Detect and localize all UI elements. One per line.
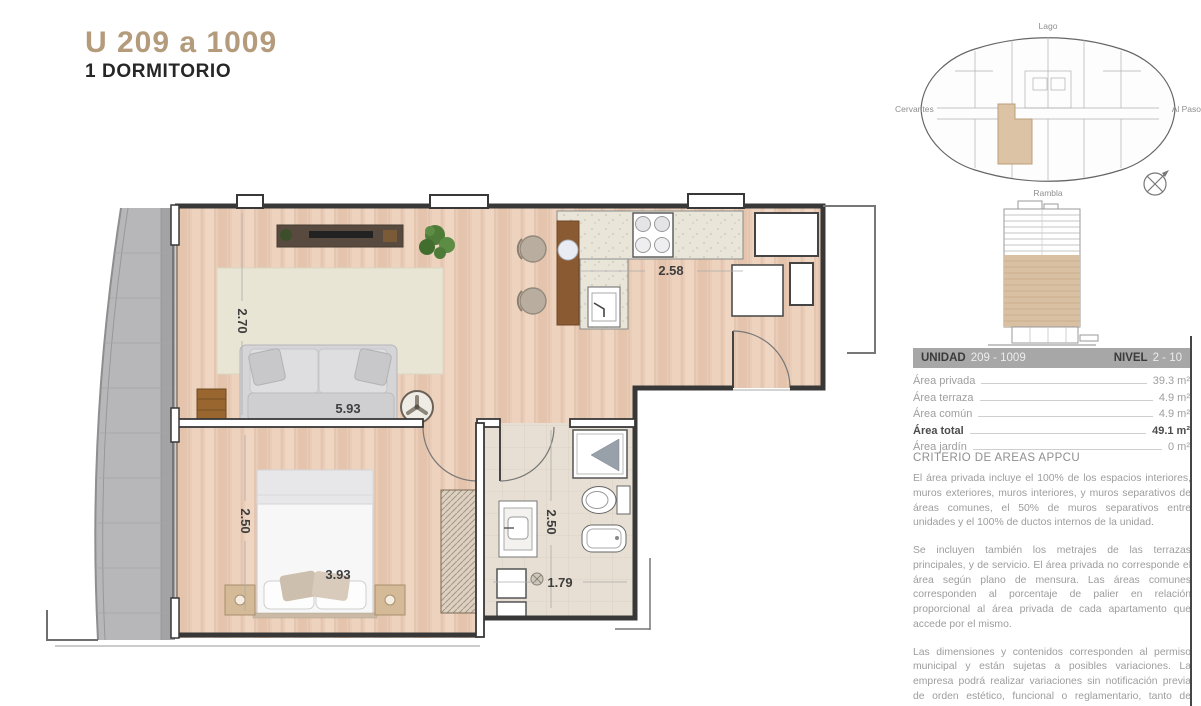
north-compass-icon (1144, 170, 1169, 195)
shower (573, 430, 627, 478)
tv-console (277, 225, 403, 247)
dimension-kitchen-width: 2.58 (658, 263, 683, 278)
table-row-total: Área total 49.1 m² (913, 425, 1190, 442)
floor-plan: 2.70 5.93 2.58 2.50 3.93 2.50 1.79 (20, 183, 885, 688)
unidad-value: 209 - 1009 (971, 352, 1026, 364)
header: U 209 a 1009 1 DORMITORIO (85, 26, 277, 83)
nivel-label: NIVEL (1114, 352, 1148, 364)
page-subtitle: 1 DORMITORIO (85, 61, 277, 83)
leader-line (980, 400, 1153, 401)
leader-line (981, 383, 1146, 384)
area-value: 39.3 m² (1153, 375, 1190, 387)
leader-line (973, 449, 1162, 450)
floorplan-sheet: U 209 a 1009 1 DORMITORIO (0, 0, 1201, 706)
key-plan-label-right: Al Paso (1172, 104, 1201, 114)
key-plan: Lago Rambla Cervantes Al Paso (893, 16, 1201, 202)
vanity-sink (499, 501, 537, 557)
area-value: 4.9 m² (1159, 392, 1190, 404)
laundry (497, 569, 526, 617)
sofa (240, 345, 397, 426)
nivel-value: 2 - 10 (1153, 352, 1182, 364)
page-title: U 209 a 1009 (85, 26, 277, 59)
building-elevation (982, 193, 1100, 351)
dimension-bedroom-depth: 2.50 (238, 508, 253, 533)
area-value: 4.9 m² (1159, 408, 1190, 420)
criteria-paragraph: Las dimensiones y contenidos corresponde… (913, 646, 1191, 706)
area-value: 49.1 m² (1152, 425, 1190, 437)
stove (633, 213, 673, 257)
key-plan-label-left: Cervantes (895, 104, 934, 114)
criteria-heading: CRITERIO DE AREAS APPCU (913, 452, 1191, 464)
unidad-label: UNIDAD (921, 352, 966, 364)
terrace (95, 208, 175, 640)
area-label: Área total (913, 425, 964, 437)
criteria-section: CRITERIO DE AREAS APPCU El área privada … (913, 452, 1191, 706)
bidet (582, 525, 626, 552)
leader-line (970, 433, 1146, 434)
page-edge-line (1190, 336, 1192, 706)
leader-line (978, 416, 1153, 417)
bar-counter (557, 221, 579, 325)
criteria-paragraph: El área privada incluye el 100% de los e… (913, 472, 1191, 531)
criteria-paragraph: Se incluyen también los metrajes de las … (913, 544, 1191, 633)
area-label: Área terraza (913, 392, 974, 404)
dimension-bath-width: 1.79 (547, 575, 572, 590)
key-plan-label-top: Lago (1039, 21, 1058, 31)
area-label: Área común (913, 408, 972, 420)
unit-info-table: UNIDAD 209 - 1009 NIVEL 2 - 10 Área priv… (913, 348, 1190, 458)
table-row: Área privada 39.3 m² (913, 375, 1190, 392)
area-rows: Área privada 39.3 m² Área terraza 4.9 m²… (913, 375, 1190, 458)
table-row: Área terraza 4.9 m² (913, 392, 1190, 409)
table-row: Área común 4.9 m² (913, 408, 1190, 425)
dimension-bath-depth: 2.50 (544, 509, 559, 534)
dimension-living-width: 5.93 (335, 401, 360, 416)
kitchen-sink (588, 287, 620, 327)
area-label: Área privada (913, 375, 975, 387)
bed (253, 470, 377, 618)
dimension-bedroom-width: 3.93 (325, 567, 350, 582)
table-header: UNIDAD 209 - 1009 NIVEL 2 - 10 (913, 348, 1190, 368)
wardrobe (441, 490, 476, 613)
shower-drain (531, 573, 543, 585)
cabinet (197, 389, 226, 421)
toilet (582, 486, 630, 514)
dimension-living-depth: 2.70 (235, 308, 250, 333)
